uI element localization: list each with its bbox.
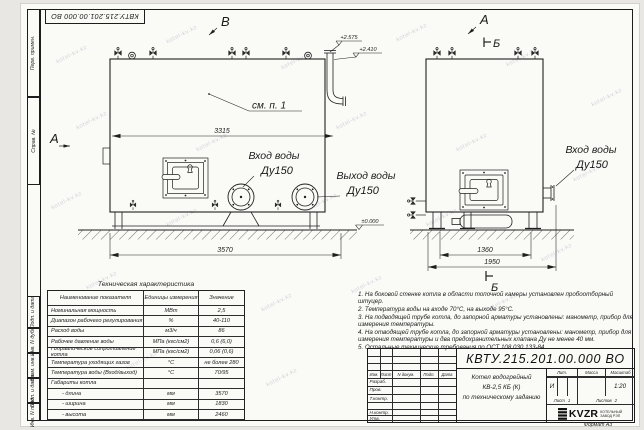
sign-label: Утв. xyxy=(370,416,380,421)
table-cell: Температура уходящих газов xyxy=(48,358,144,368)
base-frame-front xyxy=(112,212,320,229)
col-header: N докум. xyxy=(392,371,420,378)
grid-line xyxy=(368,356,456,357)
section-label-b-top: Б xyxy=(493,38,500,50)
table-cell: 0,6 (6,0) xyxy=(199,337,244,347)
lit-header: Лит. xyxy=(547,369,577,377)
grid-line xyxy=(567,377,568,396)
door-handle-icon xyxy=(162,175,180,180)
valve-icon xyxy=(242,48,249,60)
cap-fitting-icon xyxy=(129,52,136,59)
dim-1360-label: 1360 xyxy=(477,247,493,254)
table-cell: 2,5 xyxy=(199,306,244,316)
technical-notes: 1. На боковой стенке котла в области топ… xyxy=(358,291,634,351)
note-line: 4. На отводящей трубе котла, до запорной… xyxy=(358,329,634,343)
view-label-a-side: А xyxy=(479,12,489,27)
col-header: Подп. xyxy=(420,371,438,378)
furnace-door-side xyxy=(459,170,508,210)
table-cell: 3570 xyxy=(199,389,244,399)
table-cell: МВт xyxy=(144,306,199,316)
table-cell: °С xyxy=(144,358,199,368)
view-arrow-v xyxy=(209,28,217,35)
sign-label: Пров. xyxy=(370,387,382,392)
boiler-drawing-page: { "stamp_top": "КВТУ.215.201.00.000 ВО",… xyxy=(0,0,644,430)
mass-header: Масса xyxy=(577,369,605,377)
ground-hatching xyxy=(78,230,574,240)
table-cell: МПа (кгс/см2) xyxy=(144,348,199,358)
table-cell: Рабочее давление воды xyxy=(48,337,144,347)
title-block-doc-number: КВТУ.215.201.00.000 ВО xyxy=(456,349,634,369)
elevation-marks xyxy=(330,41,384,230)
table-cell: 40-110 xyxy=(199,316,244,326)
base-frame-side xyxy=(429,212,541,229)
sheets-label: Листов xyxy=(596,398,612,403)
table-cell xyxy=(144,379,199,389)
table-cell: 2460 xyxy=(199,410,244,420)
table-cell: Диапазон рабочего регулирования xyxy=(48,316,144,326)
logo-subtitle: ЗАВОД РЭП xyxy=(600,414,622,418)
section-mark-b-bottom xyxy=(486,271,493,281)
sign-label: Т.контр. xyxy=(370,396,389,401)
outlet-label: Выход воды xyxy=(336,170,395,182)
grid-line xyxy=(577,377,578,396)
view-label-v: В xyxy=(221,14,230,29)
sheet-label: Лист xyxy=(554,398,565,403)
table-cell: 70/95 xyxy=(199,368,244,378)
cap-fitting-icon xyxy=(305,52,312,59)
table-cell: °С xyxy=(144,368,199,378)
front-view-boiler xyxy=(103,48,346,230)
grid-line xyxy=(557,377,558,396)
table-header: Единицы измерения xyxy=(144,291,199,306)
sheet-cell: Лист 1 xyxy=(547,396,577,405)
inlet-side-label: Вход воды xyxy=(566,144,617,156)
inlet-front-label: Вход воды xyxy=(249,150,300,162)
dim-1950-label: 1950 xyxy=(484,259,500,266)
grid-line xyxy=(368,415,456,416)
table-header: Значение xyxy=(199,291,244,306)
scale-value: 1:20 xyxy=(605,377,635,396)
rear-pipe-elbow xyxy=(324,51,346,106)
grid-line xyxy=(368,363,456,364)
side-view-boiler xyxy=(408,48,555,229)
title-block: КВТУ.215.201.00.000 ВО Котел водогрейный… xyxy=(367,348,635,423)
inlet-front-size: Ду150 xyxy=(259,165,294,177)
grid-line xyxy=(420,349,421,422)
product-name-line: Котел водогрейный xyxy=(457,373,546,383)
table-cell: 86 xyxy=(199,327,244,337)
note-line: 2. Температура воды на входе 70°С, на вы… xyxy=(358,306,634,313)
drain-valve-icon xyxy=(130,200,136,210)
side-flange-box xyxy=(103,148,110,164)
product-name-line: КВ-2,5 КБ (К) xyxy=(457,383,546,393)
note-line: 3. На подводящей трубе котла, до запорно… xyxy=(358,314,634,328)
table-cell: мм xyxy=(144,410,199,420)
table-cell: % xyxy=(144,316,199,326)
factory-logo: KVZR КОТЕЛЬНЫЙ ЗАВОД РЭП xyxy=(546,405,634,422)
table-cell: - длина xyxy=(48,389,144,399)
note-line: 1. На боковой стенке котла в области топ… xyxy=(358,291,634,305)
logo-text: KVZR xyxy=(569,408,598,420)
table-cell: 1830 xyxy=(199,400,244,410)
scale-header: Масштаб xyxy=(605,369,635,377)
table-cell: м3/ч xyxy=(144,327,199,337)
table-header: Наименование показателя xyxy=(48,291,144,306)
sheet-value: 1 xyxy=(568,398,570,403)
valve-icon xyxy=(114,48,121,60)
view-arrow-a-side xyxy=(468,27,476,34)
sheets-cell: Листов 2 xyxy=(577,396,635,405)
tech-table: Наименование показателя Единицы измерени… xyxy=(47,290,245,421)
grid-line xyxy=(392,349,393,422)
water-outlet-port xyxy=(292,184,318,210)
title-block-product-name: Котел водогрейный КВ-2,5 КБ (К) по техни… xyxy=(456,369,546,422)
section-mark-b-top xyxy=(484,38,491,48)
inlet-side-size: Ду150 xyxy=(574,159,609,171)
table-cell: - высота xyxy=(48,410,144,420)
table-cell: - ширина xyxy=(48,400,144,410)
valve-icon xyxy=(448,48,455,60)
lit-value: И xyxy=(547,377,557,396)
inlet-nozzle-side xyxy=(543,185,554,201)
grid-line xyxy=(368,402,456,403)
table-cell: не более 280 xyxy=(199,358,244,368)
water-inlet-port xyxy=(228,184,254,210)
product-name-line: по техническому заданию xyxy=(457,393,546,403)
inlet-front-leader xyxy=(243,176,254,187)
sign-label: Разраб. xyxy=(370,379,387,384)
side-pipes-valves xyxy=(419,201,426,215)
elevation-zero-label: ±0.000 xyxy=(361,219,379,225)
door-handle-icon xyxy=(459,189,478,194)
table-cell: Гидравлическое сопротивление котла xyxy=(48,348,144,358)
keyhole-icon xyxy=(487,179,492,187)
side-valve-icon xyxy=(408,197,420,204)
grid-line xyxy=(547,377,635,378)
dim-3315-label: 3315 xyxy=(214,128,230,135)
elevation-2575-label: +2.575 xyxy=(340,35,358,41)
valve-icon xyxy=(282,48,289,60)
drain-valve-icon xyxy=(212,200,218,210)
valve-icon xyxy=(531,48,538,60)
grid-line xyxy=(438,349,439,422)
burner-cylinder xyxy=(452,215,512,228)
valve-icon xyxy=(514,48,521,60)
keyhole-icon xyxy=(188,165,193,173)
tech-table-title: Техническая характеристика xyxy=(47,281,245,288)
furnace-door-front xyxy=(162,158,208,198)
table-cell: Номинальная мощность xyxy=(48,306,144,316)
col-header: Дата xyxy=(438,371,456,378)
table-cell: МПа (кгс/см2) xyxy=(144,337,199,347)
inlet-side-leader xyxy=(556,170,574,186)
valve-icon xyxy=(149,48,156,60)
col-header: Изм. xyxy=(368,371,380,378)
table-cell: мм xyxy=(144,389,199,399)
table-cell: Габариты котла xyxy=(48,379,144,389)
logo-bars-icon xyxy=(558,408,567,420)
sign-label: Н.контр. xyxy=(370,410,389,415)
valve-icon xyxy=(433,48,440,60)
table-cell: Температура воды (Вход/выход) xyxy=(48,368,144,378)
dim-3570-label: 3570 xyxy=(217,247,233,254)
sheets-value: 2 xyxy=(615,398,617,403)
table-cell: Расход воды xyxy=(48,327,144,337)
side-valve-icon xyxy=(408,211,420,218)
see-note-label: см. п. 1 xyxy=(252,101,286,112)
table-cell: 0,06 (0,6) xyxy=(199,348,244,358)
outlet-leader xyxy=(317,196,340,197)
valve-icon xyxy=(228,48,235,60)
view-label-a-front: А xyxy=(49,131,59,146)
outlet-size: Ду150 xyxy=(345,185,380,197)
drain-valve-icon xyxy=(275,200,281,210)
table-cell xyxy=(199,379,244,389)
table-cell: мм xyxy=(144,400,199,410)
col-header: Лист xyxy=(380,371,392,378)
elevation-2410-label: +2.410 xyxy=(359,47,377,53)
format-label: Формат А3 xyxy=(560,422,636,428)
